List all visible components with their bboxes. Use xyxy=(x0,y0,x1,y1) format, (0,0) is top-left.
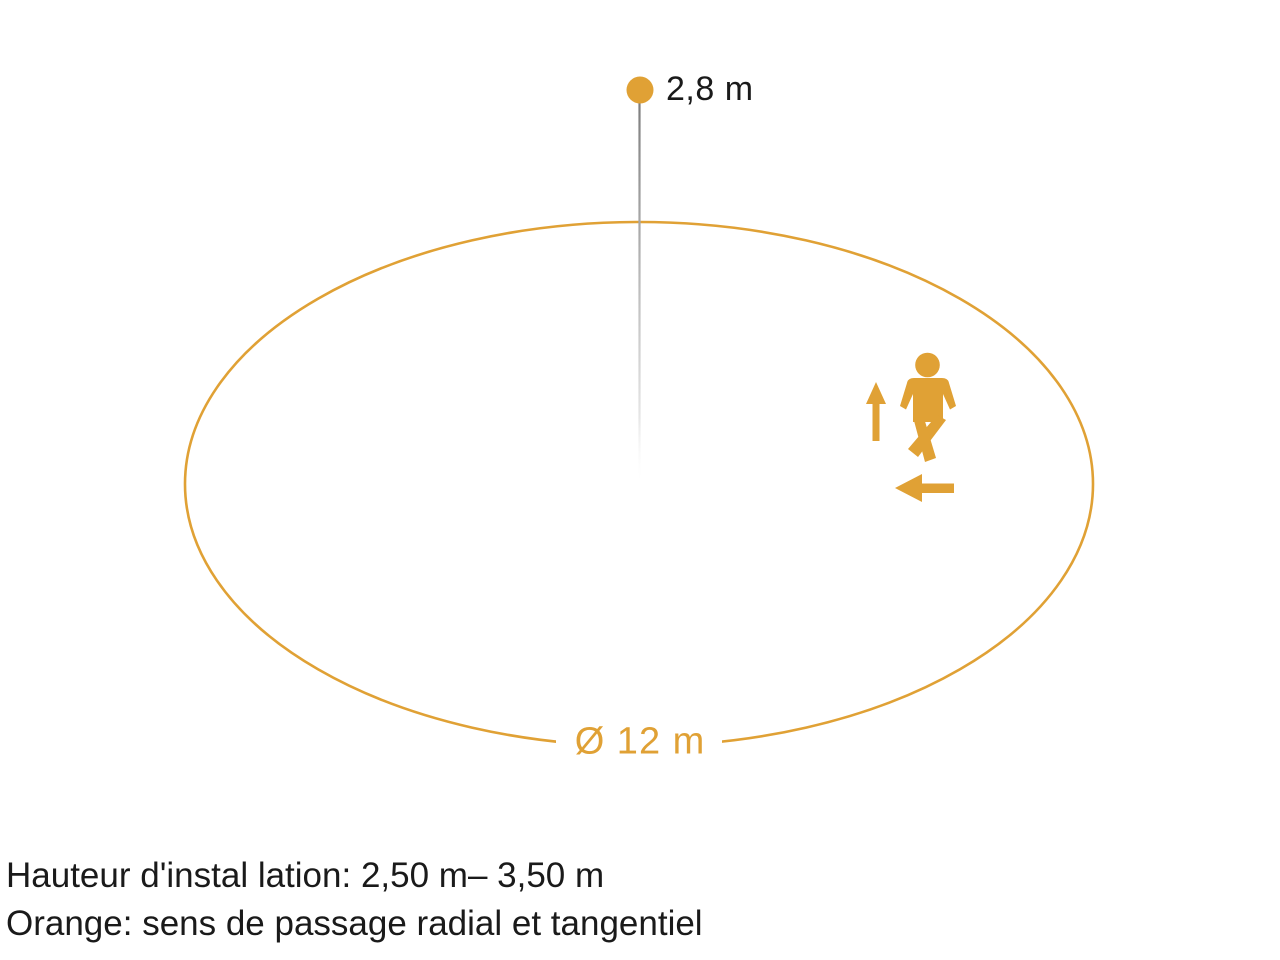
diameter-label: Ø 12 m xyxy=(575,721,706,764)
walking-person-icon xyxy=(900,353,956,462)
sensor-dot-icon xyxy=(627,77,654,104)
arrow-up-icon xyxy=(866,382,886,441)
diagram-canvas xyxy=(0,0,1280,960)
caption-legend-orange: Orange: sens de passage radial et tangen… xyxy=(6,904,703,944)
sensor-height-label: 2,8 m xyxy=(666,70,754,109)
arrow-left-icon xyxy=(895,474,954,502)
detection-range-diagram: 2,8 m Ø 12 m Hauteur d'instal lation: 2,… xyxy=(0,0,1280,960)
caption-install-height: Hauteur d'instal lation: 2,50 m– 3,50 m xyxy=(6,856,604,896)
